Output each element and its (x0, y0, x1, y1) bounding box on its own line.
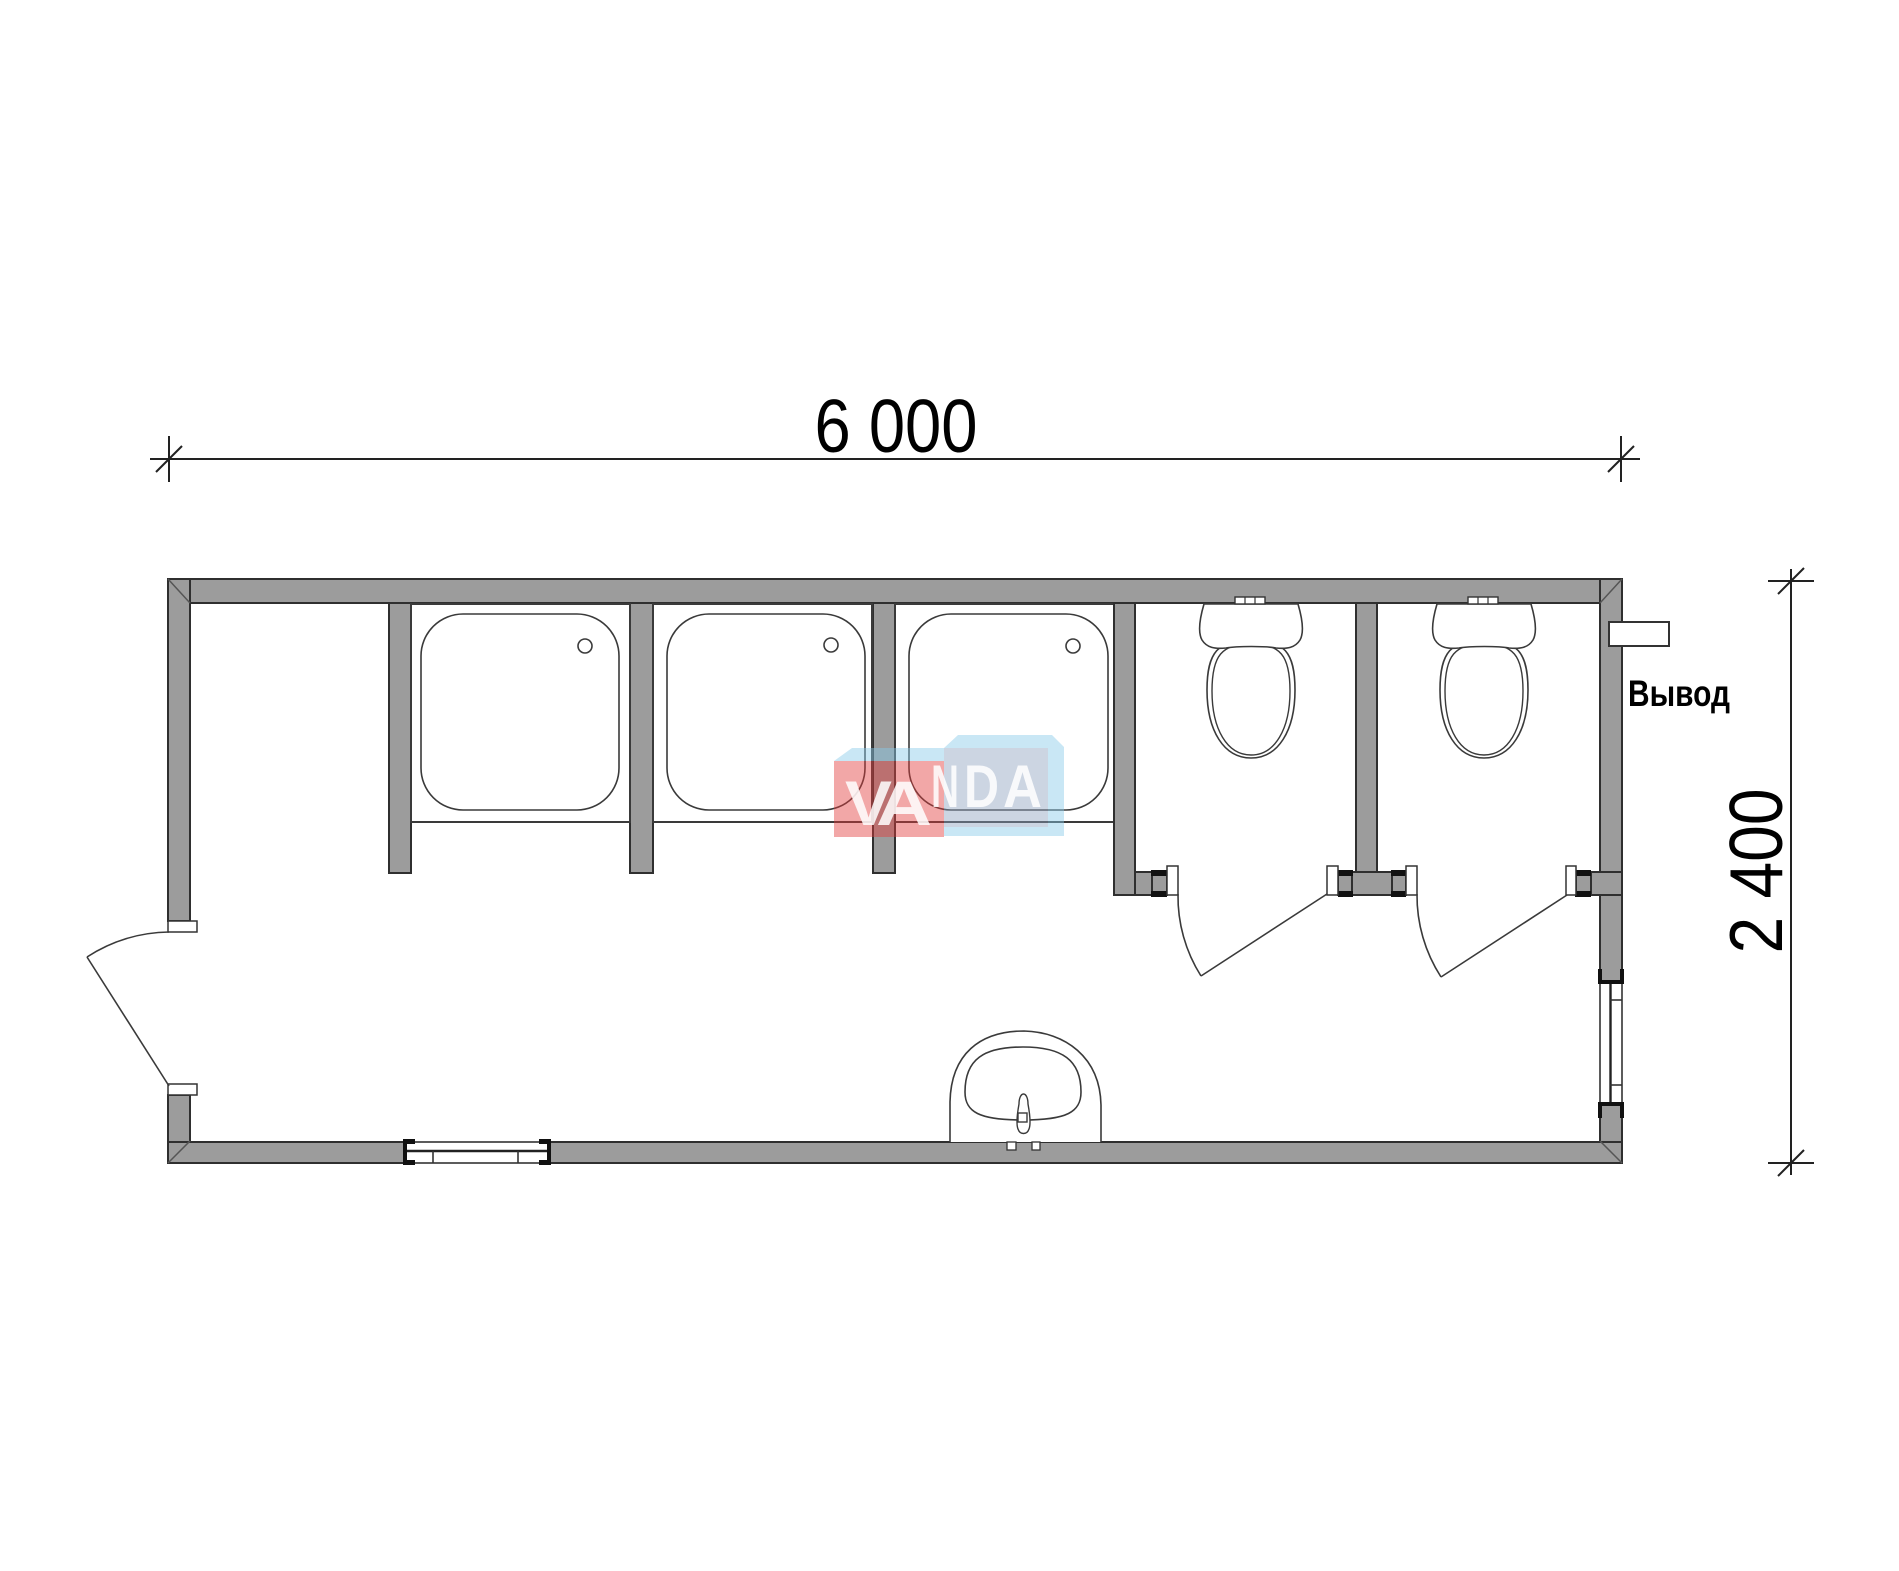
svg-text:D: D (964, 753, 999, 820)
svg-text:2 400: 2 400 (1714, 789, 1798, 954)
svg-text:N: N (931, 753, 959, 820)
svg-text:6 000: 6 000 (815, 384, 978, 468)
svg-text:A: A (876, 769, 932, 839)
svg-text:A: A (1003, 753, 1042, 820)
svg-text:Вывод: Вывод (1628, 673, 1730, 714)
